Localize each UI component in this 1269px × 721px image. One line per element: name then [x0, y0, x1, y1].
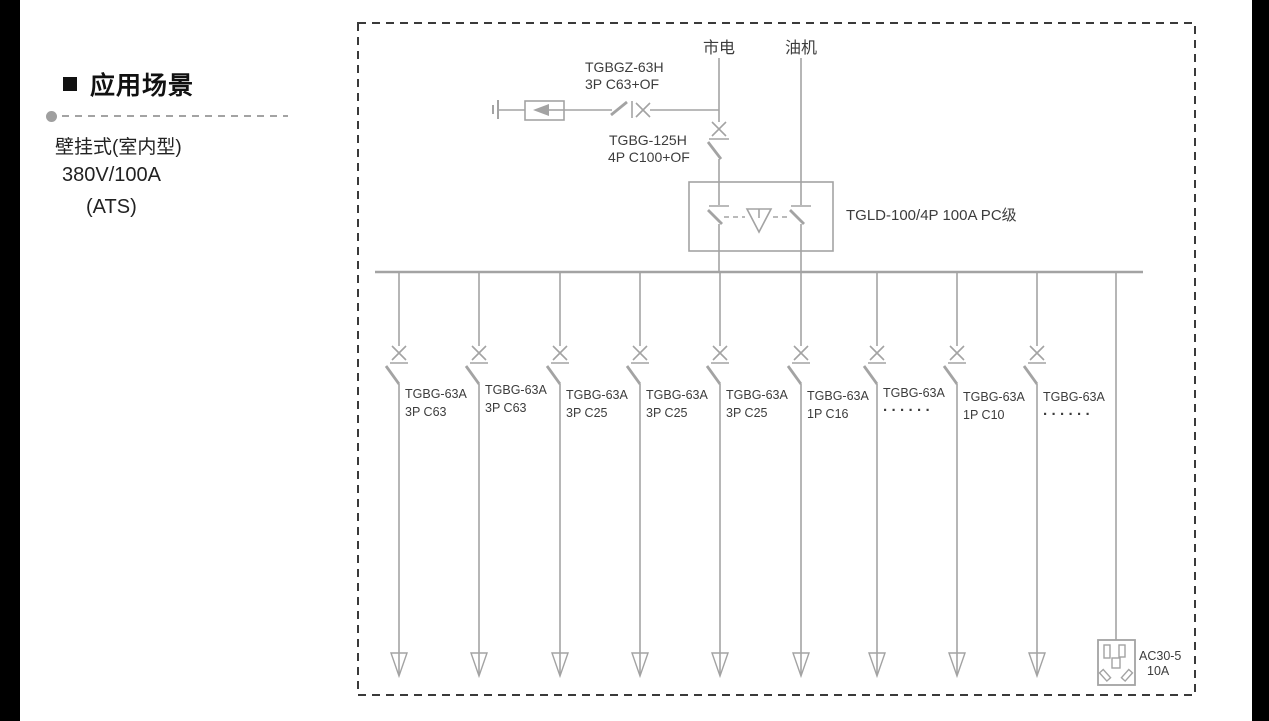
- spd-branch: [493, 100, 719, 120]
- branch-spec-label: ······: [1043, 409, 1094, 421]
- single-line-diagram: [0, 0, 1269, 721]
- branch-spec-label: 3P C63: [485, 401, 526, 415]
- branch-model-label: TGBG-63A: [485, 383, 547, 397]
- branch-spec-label: 1P C16: [807, 407, 848, 421]
- branch-model-label: TGBG-63A: [646, 388, 708, 402]
- spd-spec-label: 3P C63+OF: [585, 76, 659, 92]
- branch-spec-label: 3P C25: [726, 406, 767, 420]
- branch-spec-label: ······: [883, 405, 934, 417]
- generator-label: 油机: [785, 34, 817, 58]
- mains-feeder-line: [708, 58, 729, 182]
- branch-model-label: TGBG-63A: [405, 387, 467, 401]
- mains-label: 市电: [703, 34, 735, 58]
- main-breaker-spec-label: 4P C100+OF: [608, 149, 690, 165]
- ats-label: TGLD-100/4P 100A PC级: [846, 204, 1017, 225]
- branch-model-label: TGBG-63A: [883, 386, 945, 400]
- socket-model-label: AC30-5: [1139, 649, 1181, 663]
- ats-switch-box: [689, 182, 833, 272]
- branch-spec-label: 3P C25: [646, 406, 687, 420]
- socket-icon: [1098, 640, 1135, 685]
- branch-model-label: TGBG-63A: [963, 390, 1025, 404]
- branch-model-label: TGBG-63A: [566, 388, 628, 402]
- spd-model-label: TGBGZ-63H: [585, 59, 664, 75]
- socket-rating-label: 10A: [1147, 664, 1169, 678]
- branch-model-label: TGBG-63A: [1043, 390, 1105, 404]
- dashed-border: [358, 23, 1195, 695]
- branch-model-label: TGBG-63A: [807, 389, 869, 403]
- branch-spec-label: 3P C63: [405, 405, 446, 419]
- branch-breaker-symbols: [386, 272, 1046, 676]
- branch-model-label: TGBG-63A: [726, 388, 788, 402]
- branch-spec-label: 3P C25: [566, 406, 607, 420]
- branch-spec-label: 1P C10: [963, 408, 1004, 422]
- main-breaker-model-label: TGBG-125H: [609, 132, 687, 148]
